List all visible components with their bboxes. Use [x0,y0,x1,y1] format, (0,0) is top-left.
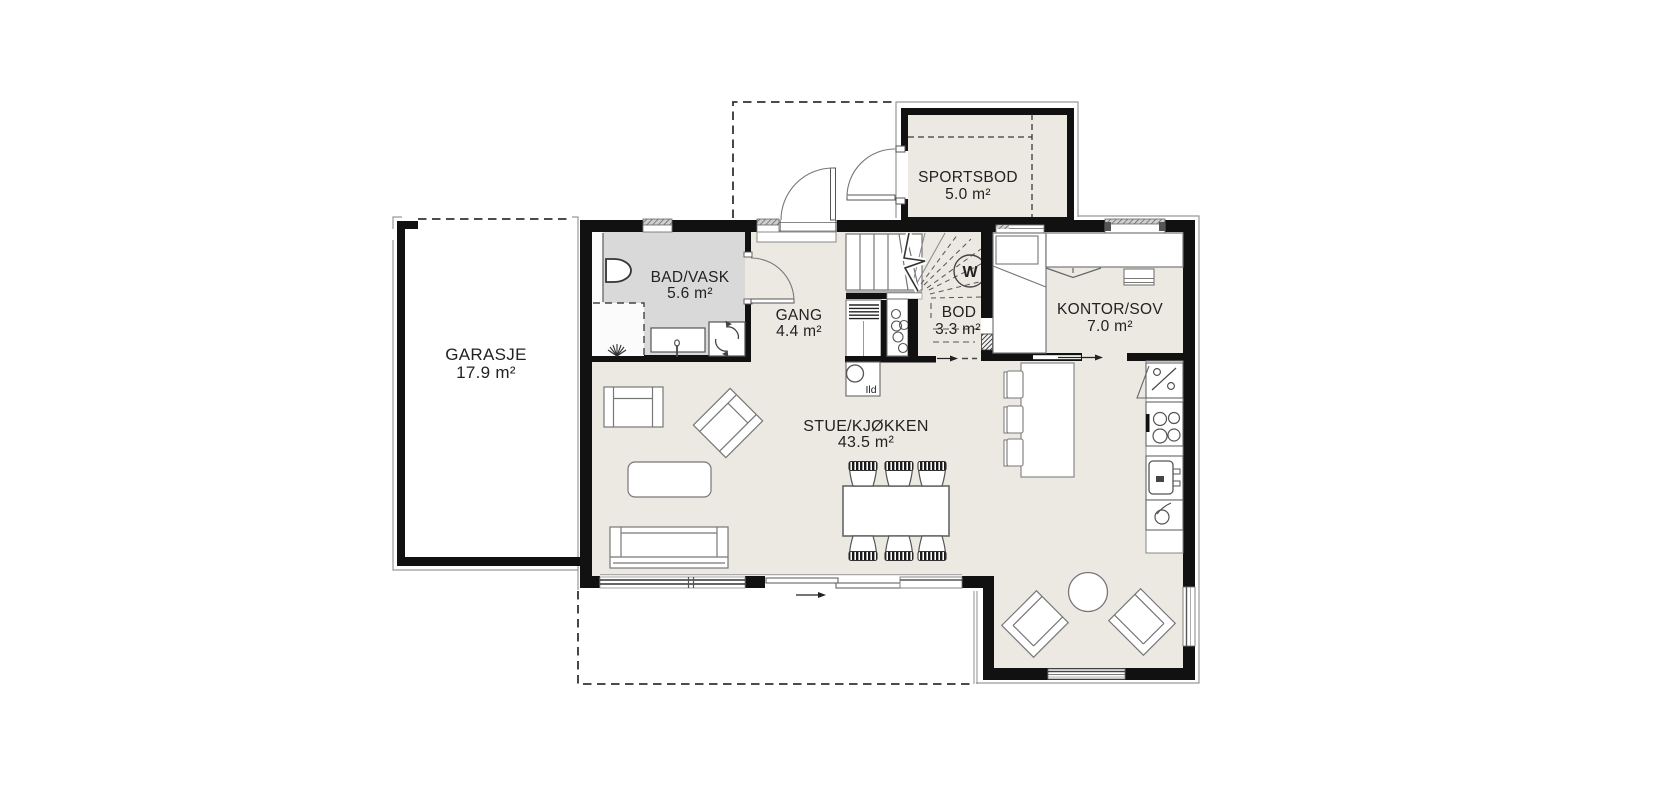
svg-text:GANG: GANG [776,307,823,324]
svg-text:W: W [962,264,978,281]
svg-text:BOD: BOD [942,304,977,321]
svg-text:17.9 m²: 17.9 m² [456,363,516,382]
svg-text:7.0 m²: 7.0 m² [1087,318,1133,335]
svg-text:5.6 m²: 5.6 m² [667,285,713,302]
svg-text:BAD/VASK: BAD/VASK [651,269,730,286]
svg-text:GARASJE: GARASJE [445,345,526,364]
svg-text:43.5 m²: 43.5 m² [838,434,895,451]
svg-text:Ild: Ild [865,384,876,396]
svg-text:3.3 m²: 3.3 m² [935,321,981,338]
svg-text:4.4 m²: 4.4 m² [776,323,822,340]
svg-text:KONTOR/SOV: KONTOR/SOV [1057,301,1163,318]
svg-text:5.0 m²: 5.0 m² [945,186,991,203]
svg-text:STUE/KJØKKEN: STUE/KJØKKEN [803,418,928,435]
svg-text:SPORTSBOD: SPORTSBOD [918,169,1018,186]
